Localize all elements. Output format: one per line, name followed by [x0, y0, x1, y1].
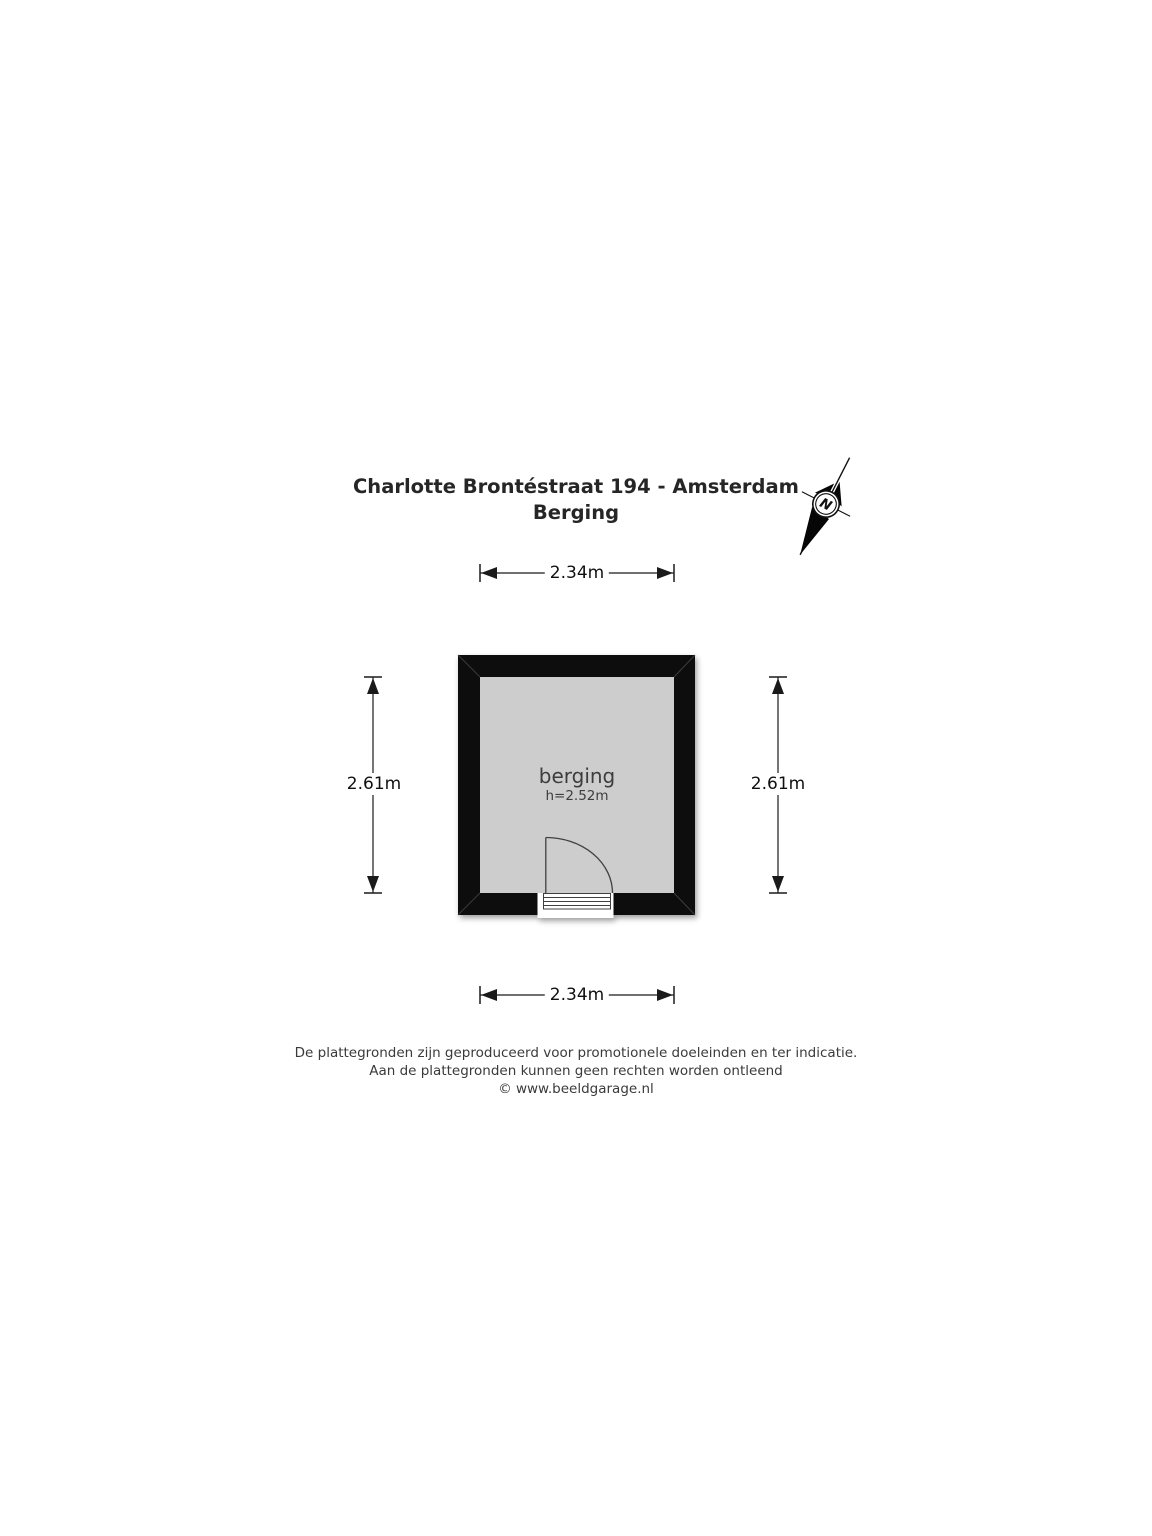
footer-line-3: © www.beeldgarage.nl: [0, 1080, 1152, 1098]
dimension-label-bottom: 2.34m: [545, 984, 609, 1006]
room-name-label: berging: [539, 764, 616, 788]
footer-line-1: De plattegronden zijn geproduceerd voor …: [0, 1044, 1152, 1062]
page-title: Charlotte Brontéstraat 194 - Amsterdam: [0, 474, 1152, 500]
dimension-label-left: 2.61m: [342, 773, 406, 795]
page-subtitle: Berging: [0, 500, 1152, 526]
dimension-label-right: 2.61m: [746, 773, 810, 795]
title-block: Charlotte Brontéstraat 194 - Amsterdam B…: [0, 474, 1152, 526]
door-sill: [544, 894, 611, 910]
footer-disclaimer: De plattegronden zijn geproduceerd voor …: [0, 1044, 1152, 1098]
room-height-label: h=2.52m: [545, 788, 608, 804]
floorplan-page: Charlotte Brontéstraat 194 - Amsterdam B…: [0, 0, 1152, 1536]
footer-line-2: Aan de plattegronden kunnen geen rechten…: [0, 1062, 1152, 1080]
dimension-label-top: 2.34m: [545, 562, 609, 584]
